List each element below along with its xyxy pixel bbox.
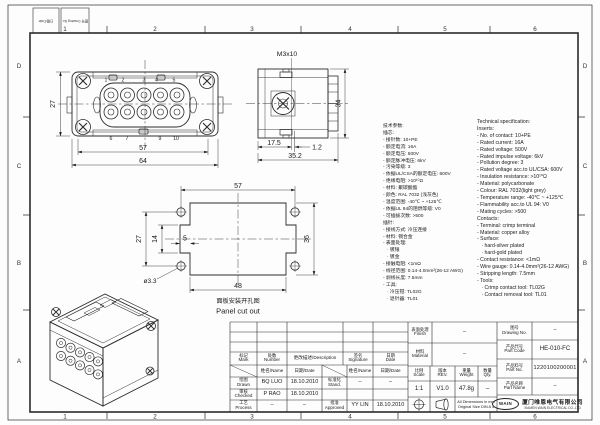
tb-stand-date: – — [373, 377, 408, 389]
dim-label-cutout-notch: 5 — [183, 236, 187, 243]
tb-number-header: 处数Number — [257, 352, 287, 365]
tb-material-value: – — [432, 343, 497, 366]
tb-qty-value: – — [478, 381, 497, 397]
tb-material-label: 材料Material — [408, 343, 432, 366]
tb-scale-label: 比例Scale — [408, 366, 430, 381]
tb-drawing-no-label: 图号Drawing No. — [497, 322, 532, 340]
zone-number: 3 — [250, 414, 254, 421]
zone-letter: C — [583, 163, 588, 170]
zone-letter: D — [17, 63, 22, 70]
wain-logo: WAIN — [492, 398, 519, 410]
dim-label-cutout-bottom: 48 — [234, 283, 242, 290]
tb-date-subheader2: 日期/Date — [373, 365, 408, 377]
tb-part-no-label: 产品料号Part No. — [497, 359, 532, 378]
pin-number: 1 — [105, 78, 108, 84]
side-view — [246, 58, 349, 163]
tb-process-date: – — [287, 400, 322, 412]
tb-drawn-label: 绘图Drawn — [230, 377, 257, 389]
panel-cutout-view — [142, 186, 318, 293]
zone-letter: D — [583, 63, 588, 70]
tb-part-code-value: HE-010-FC — [532, 340, 578, 359]
tb-approved-name: YY LIN — [347, 400, 373, 412]
truncated-cone-symbol-icon — [436, 399, 448, 410]
tb-description-header: 更改描述/Description — [287, 352, 343, 365]
corner-strip-date: 日期/Date — [33, 8, 59, 33]
tb-part-code-label: 产品代号Part Code — [497, 340, 532, 359]
dim-label-cutout-right: 36 — [304, 235, 311, 243]
first-angle-symbol-icon — [413, 398, 426, 411]
tb-process-label: 工艺Process — [230, 400, 257, 412]
zone-letter: B — [17, 260, 21, 267]
zone-letter: B — [583, 260, 587, 267]
zone-letter: C — [17, 163, 22, 170]
zone-number: 5 — [443, 414, 447, 421]
tb-stand-name: – — [347, 377, 373, 389]
dim-label-front-height: 27 — [50, 100, 57, 108]
dim-label-side-a: 17.5 — [267, 140, 281, 147]
tb-dimension-notes: All Dimensions in mmOriginal Size DIN A … — [455, 397, 497, 412]
tb-part-name-value: – — [532, 378, 578, 395]
pin-number: 2 — [122, 78, 125, 84]
tb-qty-label: 数量Qty. — [478, 366, 497, 381]
pin-number: 10 — [173, 136, 179, 142]
tb-mark-header: 标记Mark — [230, 352, 257, 365]
tb-approved-date: 18.10.2010 — [373, 400, 408, 412]
cutout-caption-en: Panel cut out — [216, 307, 261, 316]
dim-label-front-outer-width: 64 — [139, 158, 147, 165]
drawing-sheet: 1 2 3 4 5 6 1 2 3 4 5 6 D C B A D C B A — [0, 0, 600, 425]
spec-column-english: Technical specification:Inserts:- No. of… — [477, 119, 569, 299]
tb-name-subheader: 姓名/Name — [257, 365, 287, 377]
tb-approved-label: 批准Approved — [322, 400, 347, 412]
thread-label: M3x10 — [277, 51, 298, 58]
tb-weight-value: 47.8g — [455, 381, 478, 397]
zone-number: 2 — [153, 26, 157, 33]
dim-label-side-height: 34 — [336, 100, 343, 108]
hole-diameter-label: ø3.3 — [143, 278, 156, 285]
dim-label-cutout-top: 57 — [234, 183, 242, 190]
tb-part-name-label: 产品名称Part Name — [497, 378, 532, 395]
tb-weight-label: 重量Weight — [455, 366, 478, 381]
tb-date-header: 日期Date — [373, 352, 408, 365]
zone-letter: A — [583, 358, 588, 365]
zone-number: 6 — [533, 414, 537, 421]
dim-label-side-b: 1.2 — [312, 145, 322, 152]
isometric-view — [50, 294, 158, 406]
pin-number: 7 — [126, 136, 129, 142]
tb-checked-name: P RAO — [257, 389, 287, 400]
tb-signature-header: 签名Signature — [343, 352, 373, 365]
tb-rev-label: 版本REV. — [430, 366, 455, 381]
company-name-zh: 厦门唯恩电气有限公司 — [522, 397, 583, 406]
company-block: WAIN 厦门唯恩电气有限公司 XIAMEN WAIN ELECTRICAL C… — [498, 396, 577, 411]
tb-checked-label: 审核Checked — [230, 389, 257, 400]
side-view-labels: M3x10 34 17.5 1.2 35.2 — [267, 51, 342, 160]
projection-symbols — [413, 398, 449, 411]
dim-label-cutout-left: 27 — [136, 235, 143, 243]
dim-label-front-inner-width: 57 — [139, 145, 147, 152]
zone-number: 1 — [63, 414, 67, 421]
dim-label-side-total: 35.2 — [288, 153, 302, 160]
pin-number: 3 — [143, 78, 146, 84]
zone-letter: A — [17, 358, 22, 365]
zone-number: 6 — [533, 26, 537, 33]
pin-number: 9 — [159, 136, 162, 142]
tb-drawing-no-value: – — [532, 322, 578, 340]
tb-stand-label: 标准化Stand. — [322, 377, 347, 389]
tb-drawn-date: 18.10.2010 — [287, 377, 322, 389]
tb-scale-value: 1:1 — [408, 381, 430, 397]
tb-part-no-value: 1220100200001 — [532, 359, 578, 378]
tb-finish-label: 表面处理Finish — [408, 322, 432, 343]
zone-number: 4 — [348, 414, 352, 421]
zone-number: 4 — [348, 26, 352, 33]
pin-number: 5 — [173, 78, 176, 84]
pin-number: 6 — [110, 136, 113, 142]
corner-strip-drawing-no: 图号 Drawing No. — [61, 8, 89, 33]
dim-label-cutout-mid: 14 — [152, 235, 159, 243]
tb-drawn-name: BQ LUO — [257, 377, 287, 389]
zone-number: 3 — [250, 26, 254, 33]
zone-number: 2 — [153, 414, 157, 421]
tb-finish-value: – — [432, 322, 497, 343]
tb-name-subheader2: 姓名/Name — [347, 365, 373, 377]
tb-date-subheader: 日期/Date — [287, 365, 322, 377]
company-name-en: XIAMEN WAIN ELECTRICAL CO.,LTD — [524, 406, 581, 410]
tb-rev-value: V1.0 — [430, 381, 455, 397]
cutout-caption-zh: 面板安装开孔图 — [216, 297, 259, 305]
tb-process-name: – — [257, 400, 287, 412]
spec-column-chinese: 技术参数:插芯:- 接针数: 10+PE- 额定电流: 16A- 额定电压: 5… — [383, 124, 463, 304]
pin-number: 4 — [155, 78, 158, 84]
tb-checked-date: 18.10.2010 — [287, 389, 322, 400]
zone-number: 5 — [443, 26, 447, 33]
